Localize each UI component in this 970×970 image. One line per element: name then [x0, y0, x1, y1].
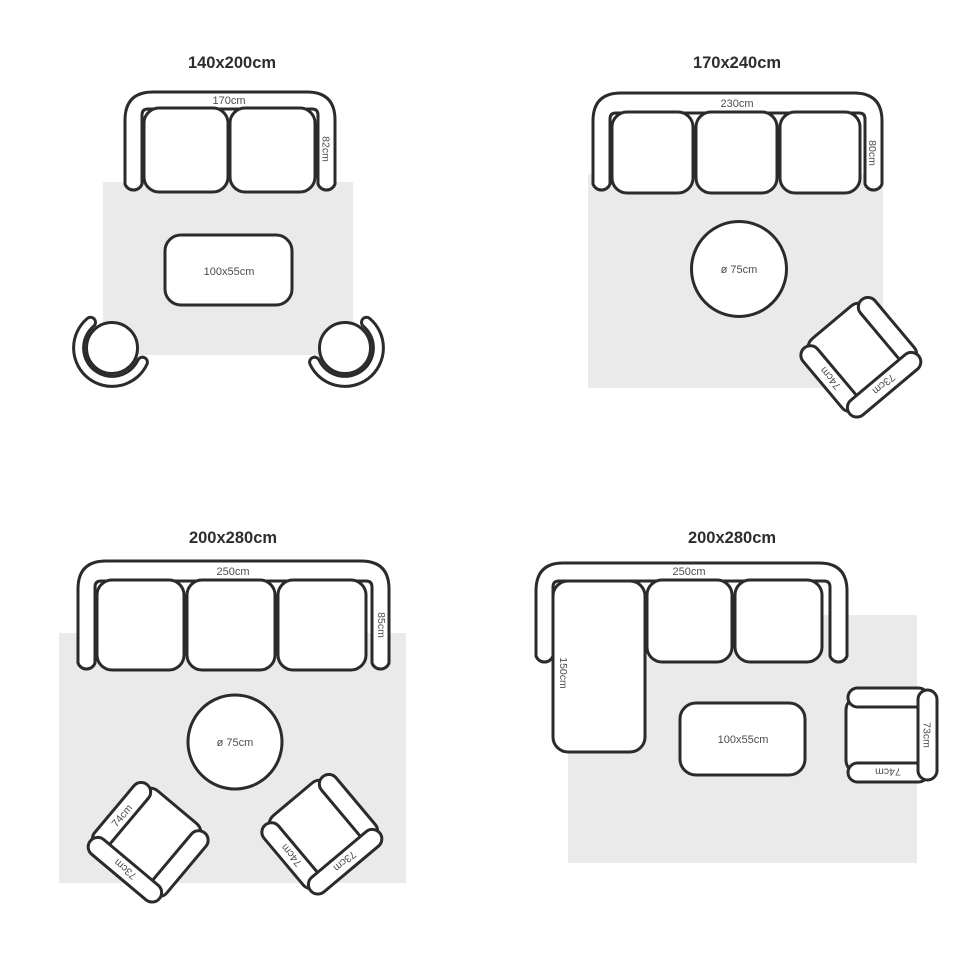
- round-chair: [79, 322, 143, 381]
- sofa-cushion: [735, 580, 822, 662]
- layout-card-140x200: 140x200cm 170cm 82cm 100x55cm: [0, 0, 485, 485]
- armchair: 74cm 73cm: [846, 688, 937, 782]
- armchair-back-label: 73cm: [921, 722, 933, 748]
- size-title: 170x240cm: [693, 54, 781, 72]
- rug-size-guide: 140x200cm 170cm 82cm 100x55cm: [0, 0, 970, 970]
- size-title: 200x280cm: [688, 529, 776, 547]
- sofa-cushion: [187, 580, 275, 670]
- sofa-width-label: 170cm: [212, 95, 245, 107]
- side-table-label: ø 75cm: [217, 737, 254, 749]
- sofa-cushion: [647, 580, 732, 662]
- round-chair-seat: [320, 323, 371, 374]
- sofa-cushion: [230, 108, 315, 192]
- layout-diagram-200x280-b: 200x280cm 250cm 150cm 100x55cm 74cm 73cm: [485, 485, 970, 970]
- layout-card-200x280-a: 200x280cm 250cm 85cm ø 75cm 74cm 73cm: [0, 485, 485, 970]
- sofa-width-label: 230cm: [720, 98, 753, 110]
- layout-diagram-170x240: 170x240cm 230cm 80cm ø 75cm 74cm 73cm: [485, 0, 970, 485]
- size-title: 200x280cm: [189, 529, 277, 547]
- round-chair: [315, 322, 379, 381]
- sofa-cushion: [780, 112, 860, 193]
- coffee-table-label: 100x55cm: [204, 266, 255, 278]
- side-table-label: ø 75cm: [721, 264, 758, 276]
- sofa-cushion: [144, 108, 228, 192]
- layout-card-170x240: 170x240cm 230cm 80cm ø 75cm 74cm 73cm: [485, 0, 970, 485]
- sofa-chaise-label: 150cm: [557, 657, 569, 689]
- sofa-depth-label: 82cm: [320, 136, 332, 162]
- sofa-cushion: [97, 580, 184, 670]
- sofa-depth-label: 80cm: [866, 140, 878, 166]
- coffee-table-label: 100x55cm: [718, 734, 769, 746]
- layout-diagram-200x280-a: 200x280cm 250cm 85cm ø 75cm 74cm 73cm: [0, 485, 485, 970]
- round-chair-seat: [87, 323, 138, 374]
- sofa-width-label: 250cm: [216, 566, 249, 578]
- sofa-cushion: [696, 112, 777, 193]
- sofa-width-label: 250cm: [672, 566, 705, 578]
- sofa-cushion: [612, 112, 693, 193]
- sofa-cushion: [278, 580, 366, 670]
- size-title: 140x200cm: [188, 54, 276, 72]
- armchair-arm-label: 74cm: [875, 766, 901, 778]
- armchair-arm: [848, 688, 928, 707]
- layout-card-200x280-b: 200x280cm 250cm 150cm 100x55cm 74cm 73cm: [485, 485, 970, 970]
- layout-diagram-140x200: 140x200cm 170cm 82cm 100x55cm: [0, 0, 485, 485]
- sofa-depth-label: 85cm: [375, 612, 387, 638]
